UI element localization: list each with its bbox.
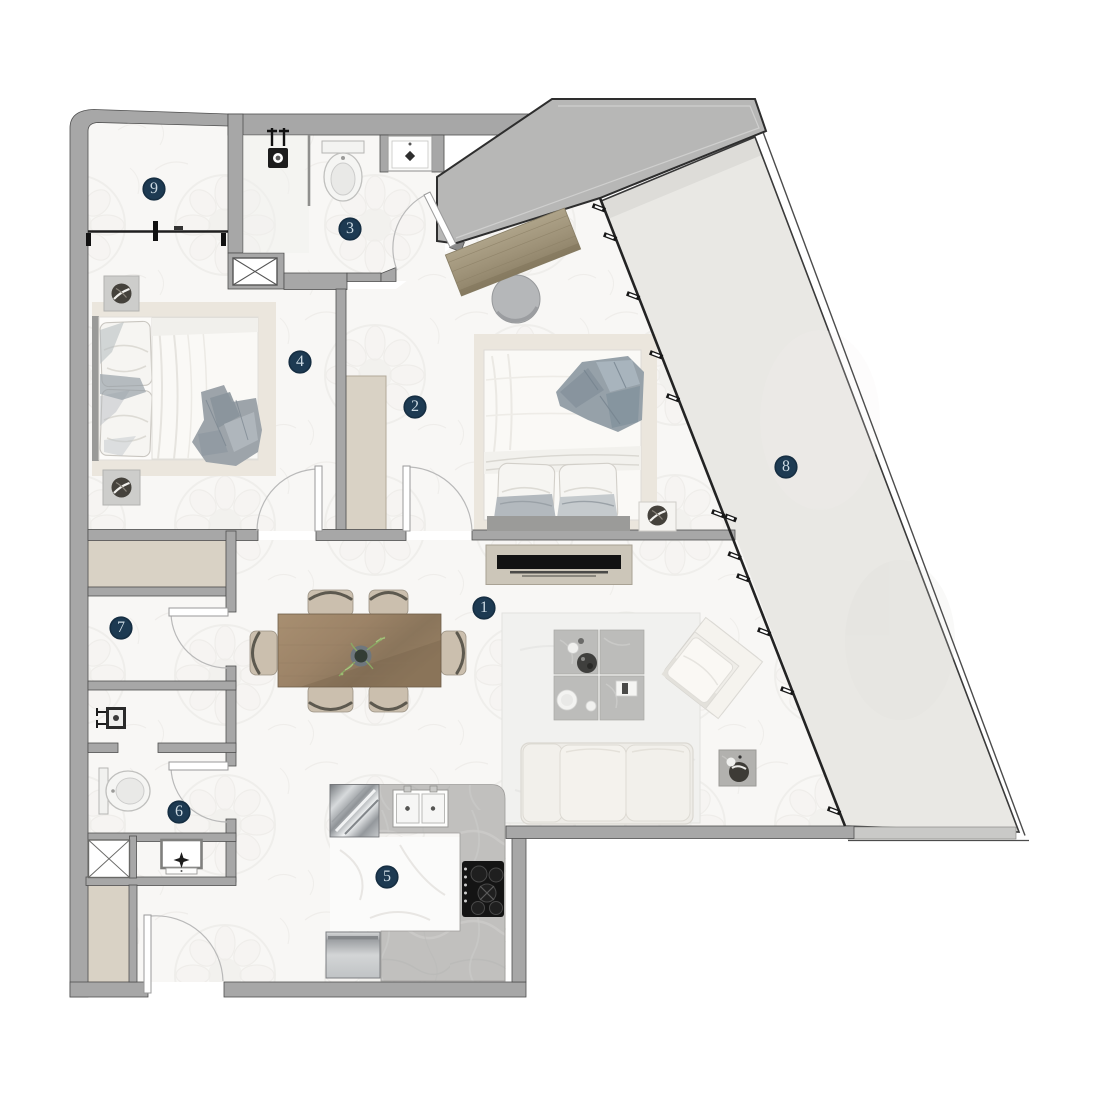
svg-text:4: 4: [296, 353, 304, 370]
svg-text:1: 1: [480, 599, 488, 616]
svg-text:9: 9: [150, 180, 158, 197]
svg-text:3: 3: [346, 220, 354, 237]
svg-text:6: 6: [175, 803, 183, 820]
svg-text:2: 2: [411, 398, 419, 415]
svg-text:7: 7: [117, 619, 125, 636]
svg-text:5: 5: [383, 868, 391, 885]
svg-text:8: 8: [782, 458, 790, 475]
